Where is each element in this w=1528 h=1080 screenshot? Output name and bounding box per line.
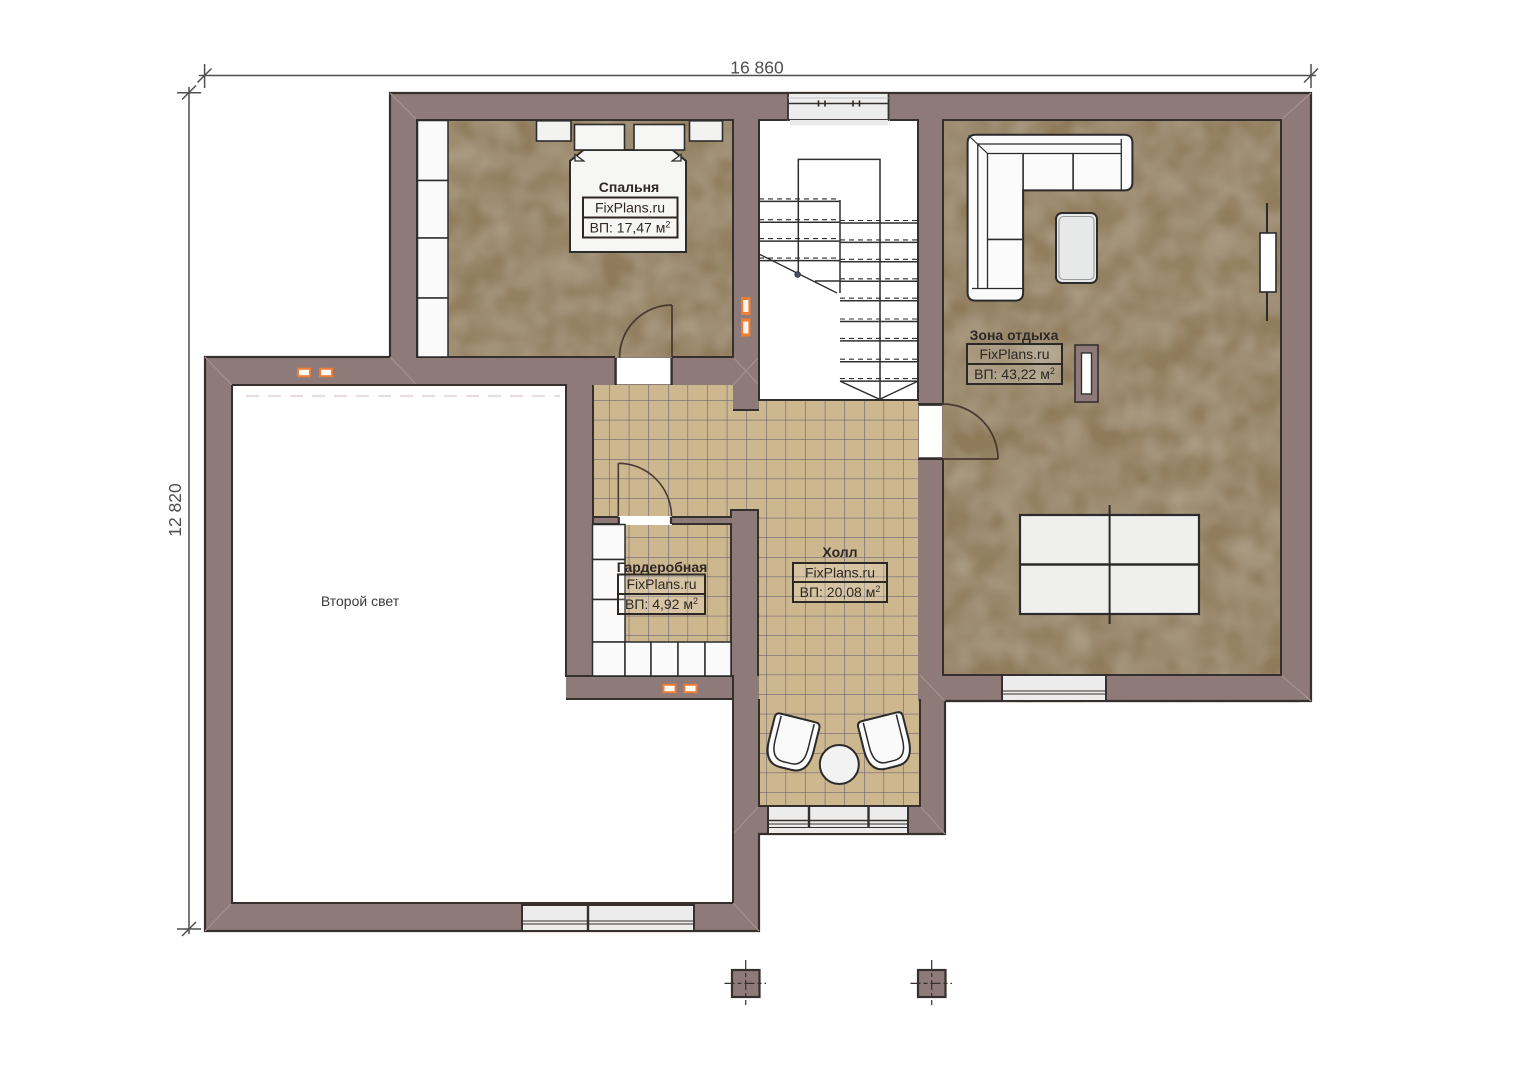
svg-text:Второй свет: Второй свет	[321, 593, 400, 609]
svg-text:ВП: 20,08 м2: ВП: 20,08 м2	[800, 584, 881, 600]
svg-text:Спальня: Спальня	[599, 179, 659, 195]
svg-text:12 820: 12 820	[165, 483, 185, 537]
svg-text:Зона отдыха: Зона отдыха	[970, 327, 1059, 343]
svg-text:ВП: 4,92 м2: ВП: 4,92 м2	[625, 596, 698, 612]
svg-text:Гардеробная: Гардеробная	[617, 559, 708, 575]
svg-text:FixPlans.ru: FixPlans.ru	[979, 346, 1049, 362]
svg-text:FixPlans.ru: FixPlans.ru	[805, 565, 875, 581]
svg-text:ВП: 17,47 м2: ВП: 17,47 м2	[590, 220, 671, 236]
svg-text:FixPlans.ru: FixPlans.ru	[626, 576, 696, 592]
svg-text:FixPlans.ru: FixPlans.ru	[595, 200, 665, 216]
svg-text:Холл: Холл	[822, 544, 857, 560]
svg-text:ВП: 43,22 м2: ВП: 43,22 м2	[974, 366, 1055, 382]
svg-text:16 860: 16 860	[730, 58, 784, 78]
